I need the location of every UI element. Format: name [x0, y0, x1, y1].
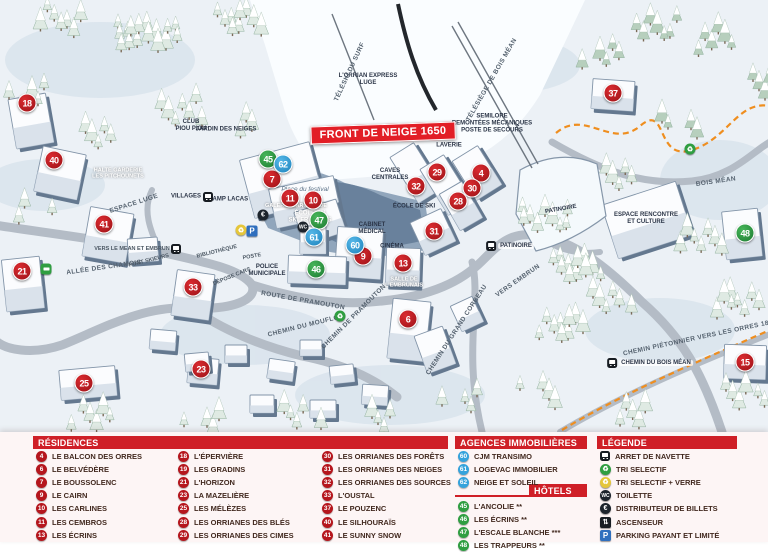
map-marker-37: 37: [604, 84, 623, 103]
bus-icon: [203, 192, 213, 202]
map-label-espace-rencontre: ESPACE RENCONTRE ET CULTURE: [614, 212, 678, 226]
marker-badge-46: 46: [458, 514, 469, 525]
marker-badge-7: 7: [36, 477, 47, 488]
map-marker-40: 40: [45, 151, 64, 170]
legende-label: TRI SELECTIF: [616, 465, 666, 474]
map-marker-46: 46: [307, 260, 326, 279]
residence-label: LES ORRIANES DES NEIGES: [338, 465, 442, 474]
marker-badge-25: 25: [178, 503, 189, 514]
map-marker-15: 15: [736, 353, 755, 372]
map-marker-23: 23: [192, 360, 211, 379]
agence-label: CJM TRANSIMO: [474, 452, 532, 461]
residence-label: L'OUSTAL: [338, 491, 375, 500]
map-label-villages: VILLAGES: [171, 193, 201, 200]
residence-item-9: 9LE CAIRN: [36, 490, 87, 502]
residence-item-19: 19LES GRADINS: [178, 463, 245, 475]
legende-item-bus: ARRET DE NAVETTE: [600, 450, 690, 462]
residence-label: L'HORIZON: [194, 478, 235, 487]
residence-label: LE CAIRN: [52, 491, 87, 500]
residence-item-28: 28LES ORRIANES DES BLÉS: [178, 516, 290, 528]
marker-badge-9: 9: [36, 490, 47, 501]
residence-item-23: 23LA MAZELIÈRE: [178, 490, 249, 502]
residence-label: LES CEMBROS: [52, 518, 107, 527]
bus-icon: [171, 244, 181, 254]
map-marker-13: 13: [394, 254, 413, 273]
hotels-divider: [455, 495, 531, 497]
marker-badge-10: 10: [36, 503, 47, 514]
map-label-salle-embrunais: SALLE DE L'EMBRUNAIS: [385, 277, 423, 290]
residence-item-18: 18L'ÉPERVIÈRE: [178, 450, 243, 462]
marker-badge-19: 19: [178, 464, 189, 475]
residence-label: LES ORRIANES DES FORÊTS: [338, 452, 444, 461]
legende-item-wc: WCTOILETTE: [600, 490, 652, 502]
parking-icon: P: [247, 226, 258, 237]
hotel-item-48: 48LES TRAPPEURS **: [458, 540, 545, 552]
marker-badge-28: 28: [178, 517, 189, 528]
legende-label: ARRET DE NAVETTE: [615, 452, 690, 461]
residence-label: LE POUZENC: [338, 504, 386, 513]
lift-icon: ⇅: [600, 517, 611, 528]
map-label-ecole-de-ski: ÉCOLE DE SKI: [393, 203, 435, 210]
map-marker-62: 62: [274, 155, 293, 174]
legende-item-euro: €DISTRIBUTEUR DE BILLETS: [600, 503, 718, 515]
map-label-halte-garderie: HALTE GARDERIE LES PITCHOUNETS: [92, 168, 144, 181]
agence-item-60: 60CJM TRANSIMO: [458, 450, 532, 462]
recycle-icon: ♻: [600, 464, 611, 475]
residence-item-41: 41LE SUNNY SNOW: [322, 529, 401, 541]
bus-icon: [486, 241, 496, 251]
residence-item-31: 31LES ORRIANES DES NEIGES: [322, 463, 442, 475]
residences-header: RÉSIDENCES: [33, 436, 448, 449]
busgreen-icon: [41, 264, 52, 275]
hotel-label: LES TRAPPEURS **: [474, 541, 545, 550]
hotel-item-46: 46LES ÉCRINS **: [458, 513, 527, 525]
legende-label: DISTRIBUTEUR DE BILLETS: [616, 504, 718, 513]
marker-badge-37: 37: [322, 503, 333, 514]
marker-badge-11: 11: [36, 517, 47, 528]
map-label-laverie: LAVERIE: [436, 142, 462, 149]
map-marker-10: 10: [304, 191, 323, 210]
map-marker-48: 48: [736, 224, 755, 243]
residence-item-32: 32LES ORRIANES DES SOURCES: [322, 476, 451, 488]
hotel-label: L'ANCOLIE **: [474, 502, 522, 511]
marker-badge-30: 30: [322, 451, 333, 462]
residence-item-13: 13LES ÉCRINS: [36, 529, 97, 541]
hotel-label: LES ÉCRINS **: [474, 515, 527, 524]
legende-label: PARKING PAYANT ET LIMITÉ: [616, 531, 719, 540]
residence-item-37: 37LE POUZENC: [322, 503, 386, 515]
legende-label: TOILETTE: [616, 491, 652, 500]
residence-label: LE BELVÉDÈRE: [52, 465, 109, 474]
map-marker-32: 32: [407, 177, 426, 196]
triverre-icon: ♻: [600, 477, 611, 488]
recycle-icon: ♻: [685, 144, 696, 155]
residence-item-21: 21L'HORIZON: [178, 476, 235, 488]
marker-badge-62: 62: [458, 477, 469, 488]
map-label-cinema: CINÉMA: [380, 243, 404, 250]
bus-icon: [607, 358, 617, 368]
map-marker-61: 61: [305, 228, 324, 247]
hotel-label: L'ESCALE BLANCHE ***: [474, 528, 560, 537]
wc-icon: WC: [600, 490, 611, 501]
residence-item-6: 6LE BELVÉDÈRE: [36, 463, 109, 475]
residence-label: LES MÉLÈZES: [194, 504, 246, 513]
map-marker-31: 31: [425, 222, 444, 241]
residence-item-4: 4LE BALCON DES ORRES: [36, 450, 142, 462]
residence-label: LA MAZELIÈRE: [194, 491, 249, 500]
residence-label: L'ÉPERVIÈRE: [194, 452, 243, 461]
residence-label: LES ORRIANES DES BLÉS: [194, 518, 290, 527]
map-label-police-municipale: POLICE MUNICIPALE: [249, 264, 286, 278]
legende-item-lift: ⇅ASCENSEUR: [600, 516, 663, 528]
residence-item-7: 7LE BOUSSOLENC: [36, 476, 117, 488]
map-label-jardin-des-neiges: JARDIN DES NEIGES: [196, 126, 257, 133]
marker-badge-6: 6: [36, 464, 47, 475]
marker-badge-31: 31: [322, 464, 333, 475]
parking-icon: P: [600, 530, 611, 541]
residence-label: LE BOUSSOLENC: [52, 478, 117, 487]
bus-icon: [600, 451, 610, 461]
residence-item-29: 29LES ORRIANES DES CIMES: [178, 529, 294, 541]
map-marker-28: 28: [449, 192, 468, 211]
map-marker-11: 11: [281, 189, 300, 208]
residence-label: LES ÉCRINS: [52, 531, 97, 540]
residence-item-40: 40LE SILHOURAÏS: [322, 516, 396, 528]
marker-badge-45: 45: [458, 501, 469, 512]
bus-stop-0: [203, 192, 213, 202]
marker-badge-29: 29: [178, 530, 189, 541]
recycle-icon: ♻: [335, 311, 346, 322]
legende-item-recycle: ♻TRI SELECTIF: [600, 463, 666, 475]
residence-item-33: 33L'OUSTAL: [322, 490, 375, 502]
map-label-vers-le-mean: VERS LE MEAN ET EMBRUN: [94, 246, 169, 252]
legende-label: ASCENSEUR: [616, 518, 663, 527]
resort-map: FRONT DE NEIGE 1650 18404121332523711109…: [0, 0, 768, 432]
marker-badge-13: 13: [36, 530, 47, 541]
legende-header: LÉGENDE: [597, 436, 737, 449]
bus-stop-3: CHEMIN DU BOIS MÉAN: [607, 358, 693, 368]
bus-stop-2: PATINOIRE: [486, 241, 534, 251]
residence-label: LE SUNNY SNOW: [338, 531, 401, 540]
map-marker-41: 41: [95, 215, 114, 234]
marker-badge-21: 21: [178, 477, 189, 488]
map-marker-25: 25: [75, 374, 94, 393]
marker-badge-40: 40: [322, 517, 333, 528]
residence-item-30: 30LES ORRIANES DES FORÊTS: [322, 450, 444, 462]
agences-header: AGENCES IMMOBILIÈRES: [455, 436, 587, 449]
euro-icon: €: [600, 503, 611, 514]
agence-item-61: 61LOGEVAC IMMOBILIER: [458, 463, 558, 475]
hotel-item-47: 47L'ESCALE BLANCHE ***: [458, 526, 560, 538]
map-marker-6: 6: [399, 310, 418, 329]
marker-badge-23: 23: [178, 490, 189, 501]
residence-label: LES ORRIANES DES SOURCES: [338, 478, 451, 487]
bus-stop-label: CHEMIN DU BOIS MÉAN: [619, 360, 693, 366]
map-marker-29: 29: [428, 163, 447, 182]
marker-badge-61: 61: [458, 464, 469, 475]
residence-label: LE BALCON DES ORRES: [52, 452, 142, 461]
map-marker-60: 60: [346, 236, 365, 255]
map-marker-21: 21: [13, 262, 32, 281]
legende-label: TRI SELECTIF + VERRE: [616, 478, 701, 487]
agence-label: LOGEVAC IMMOBILIER: [474, 465, 558, 474]
map-marker-18: 18: [18, 94, 37, 113]
triverre-icon: ♻: [236, 225, 247, 236]
map-marker-33: 33: [184, 278, 203, 297]
agence-label: NEIGE ET SOLEIL: [474, 478, 538, 487]
marker-badge-33: 33: [322, 490, 333, 501]
legende-item-triverre: ♻TRI SELECTIF + VERRE: [600, 476, 701, 488]
bus-stop-1: [171, 244, 181, 254]
marker-badge-41: 41: [322, 530, 333, 541]
residence-item-11: 11LES CEMBROS: [36, 516, 107, 528]
residence-label: LES GRADINS: [194, 465, 245, 474]
hotel-item-45: 45L'ANCOLIE **: [458, 500, 522, 512]
bus-stop-label: PATINOIRE: [498, 243, 534, 249]
map-label-caves-centrales: CAVES CENTRALES: [372, 168, 409, 182]
residence-label: LES CARLINES: [52, 504, 107, 513]
residence-label: LES ORRIANES DES CIMES: [194, 531, 294, 540]
marker-badge-32: 32: [322, 477, 333, 488]
marker-badge-60: 60: [458, 451, 469, 462]
legende-item-parking: PPARKING PAYANT ET LIMITÉ: [600, 529, 719, 541]
residence-item-10: 10LES CARLINES: [36, 503, 107, 515]
map-label-cabinet-medical: CABINET MÉDICAL: [358, 222, 385, 236]
euro-icon: €: [258, 210, 269, 221]
marker-badge-4: 4: [36, 451, 47, 462]
marker-badge-47: 47: [458, 527, 469, 538]
map-label-semilore-remontees: SEMILORE REMONTÉES MÉCANIQUES POSTE DE S…: [452, 113, 532, 134]
residence-label: LE SILHOURAÏS: [338, 518, 396, 527]
agence-item-62: 62NEIGE ET SOLEIL: [458, 476, 538, 488]
marker-badge-18: 18: [178, 451, 189, 462]
legend-panel: RÉSIDENCES AGENCES IMMOBILIÈRES LÉGENDE …: [0, 432, 768, 542]
residence-item-25: 25LES MÉLÈZES: [178, 503, 246, 515]
